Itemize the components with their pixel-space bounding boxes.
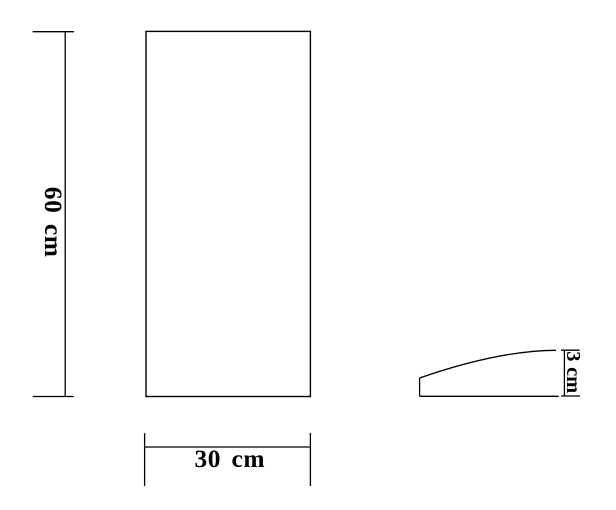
svg-text:60 cm: 60 cm <box>39 187 67 258</box>
svg-text:30 cm: 30 cm <box>194 445 265 473</box>
svg-text:3 cm: 3 cm <box>562 351 584 393</box>
